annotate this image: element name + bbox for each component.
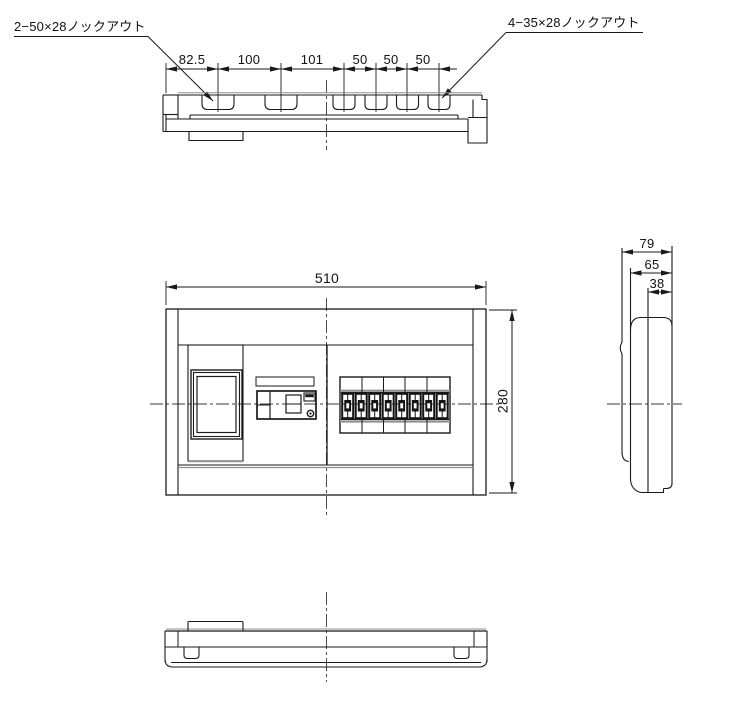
- branch-breaker-module: [369, 394, 380, 418]
- dim-chain-101: 101: [301, 53, 324, 66]
- dim-depth-79: 79: [639, 237, 654, 250]
- door-window-frame-mid: [194, 373, 240, 437]
- dim-chain-50b: 50: [383, 53, 398, 66]
- knockout-35x28-3: [397, 96, 419, 110]
- top-view-body: [163, 93, 487, 143]
- front-enclosure: [166, 309, 486, 495]
- drawing-linework: [0, 0, 729, 701]
- bottom-protrusion: [188, 622, 243, 632]
- door-window-frame-inner: [197, 377, 236, 433]
- main-breaker-door: [188, 345, 243, 462]
- branch-breaker-module: [356, 394, 367, 418]
- branch-breaker-module: [396, 394, 407, 418]
- dim-width-510: 510: [315, 272, 339, 285]
- dim-height-280: 280: [497, 389, 510, 413]
- dim-chain-82-5: 82.5: [179, 53, 206, 66]
- dim-depth-38: 38: [649, 277, 664, 290]
- dim-depth-65: 65: [644, 258, 659, 271]
- centerlines: [150, 80, 682, 682]
- dim-chain-100: 100: [238, 53, 261, 66]
- bottom-hook-right: [454, 647, 469, 659]
- branch-breaker-module: [437, 394, 448, 418]
- top-view: [14, 33, 643, 144]
- front-view: [166, 281, 517, 495]
- name-plate: [256, 377, 314, 386]
- bottom-view: [165, 622, 487, 668]
- branch-breaker-module: [342, 394, 353, 418]
- main-breaker-unit: [256, 377, 316, 419]
- engineering-drawing-canvas: 2−50×28ノックアウト 4−35×28ノックアウト 82.5 100 101…: [0, 0, 729, 701]
- knockout-label-left: 2−50×28ノックアウト: [14, 20, 146, 33]
- branch-breaker-modules: [342, 394, 448, 418]
- dim-chain-50a: 50: [352, 53, 367, 66]
- branch-breaker-module: [383, 394, 394, 418]
- branch-breaker-module: [410, 394, 421, 418]
- dim-chain-50c: 50: [415, 53, 430, 66]
- top-view-extension-lines: [166, 63, 439, 112]
- knockout-leader-lines: [14, 33, 643, 102]
- knockout-label-right: 4−35×28ノックアウト: [508, 16, 640, 29]
- knockouts: [202, 96, 450, 110]
- door-window-frame-outer: [191, 370, 242, 439]
- bottom-hook-left: [184, 647, 199, 659]
- branch-breaker-module: [423, 394, 434, 418]
